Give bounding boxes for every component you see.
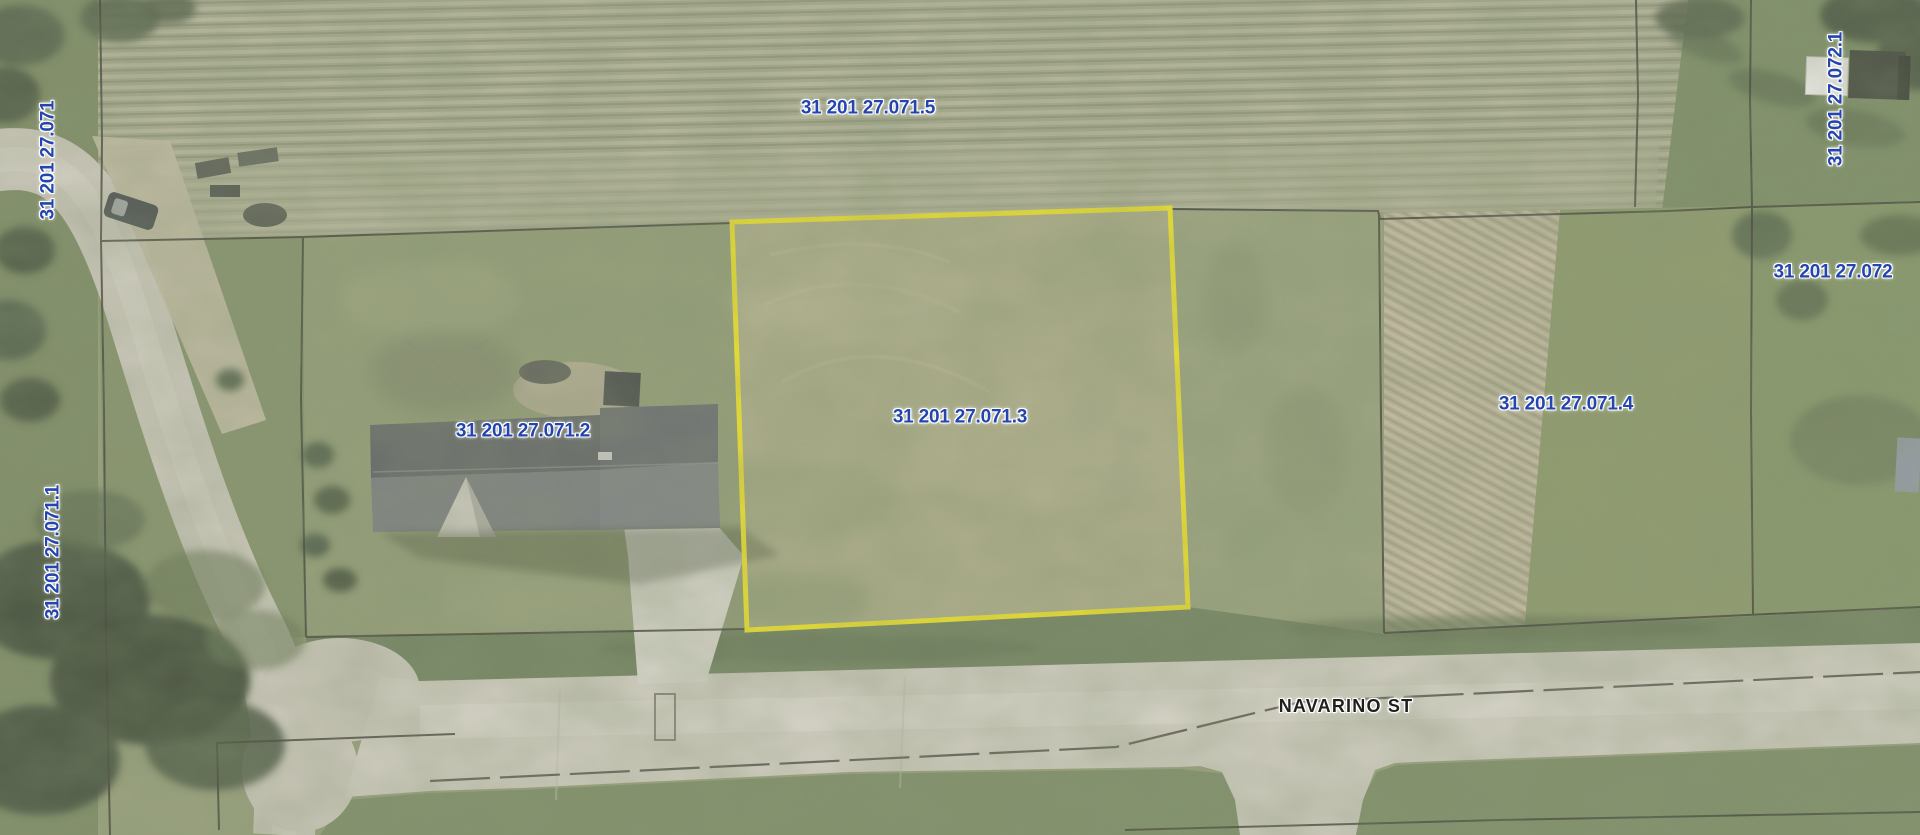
parcel-label-27-072-1: 31 201 27.072.1	[1827, 32, 1846, 166]
parcel-label-27-071-4: 31 201 27.071.4	[1499, 395, 1633, 414]
parcel-label-27-071-3: 31 201 27.071.3	[893, 408, 1027, 427]
parcel-label-27-071-1: 31 201 27.071.1	[44, 485, 63, 619]
parcel-label-27-071: 31 201 27.071	[39, 101, 58, 220]
parcel-label-27-072: 31 201 27.072	[1774, 263, 1893, 282]
parcel-label-27-071-5: 31 201 27.071.5	[801, 99, 935, 118]
aerial-map[interactable]: 31 201 27.071.5 31 201 27.072.1 31 201 2…	[0, 0, 1920, 835]
parcel-label-27-071-2: 31 201 27.071.2	[456, 422, 590, 441]
street-label: NAVARINO ST	[1279, 697, 1414, 715]
